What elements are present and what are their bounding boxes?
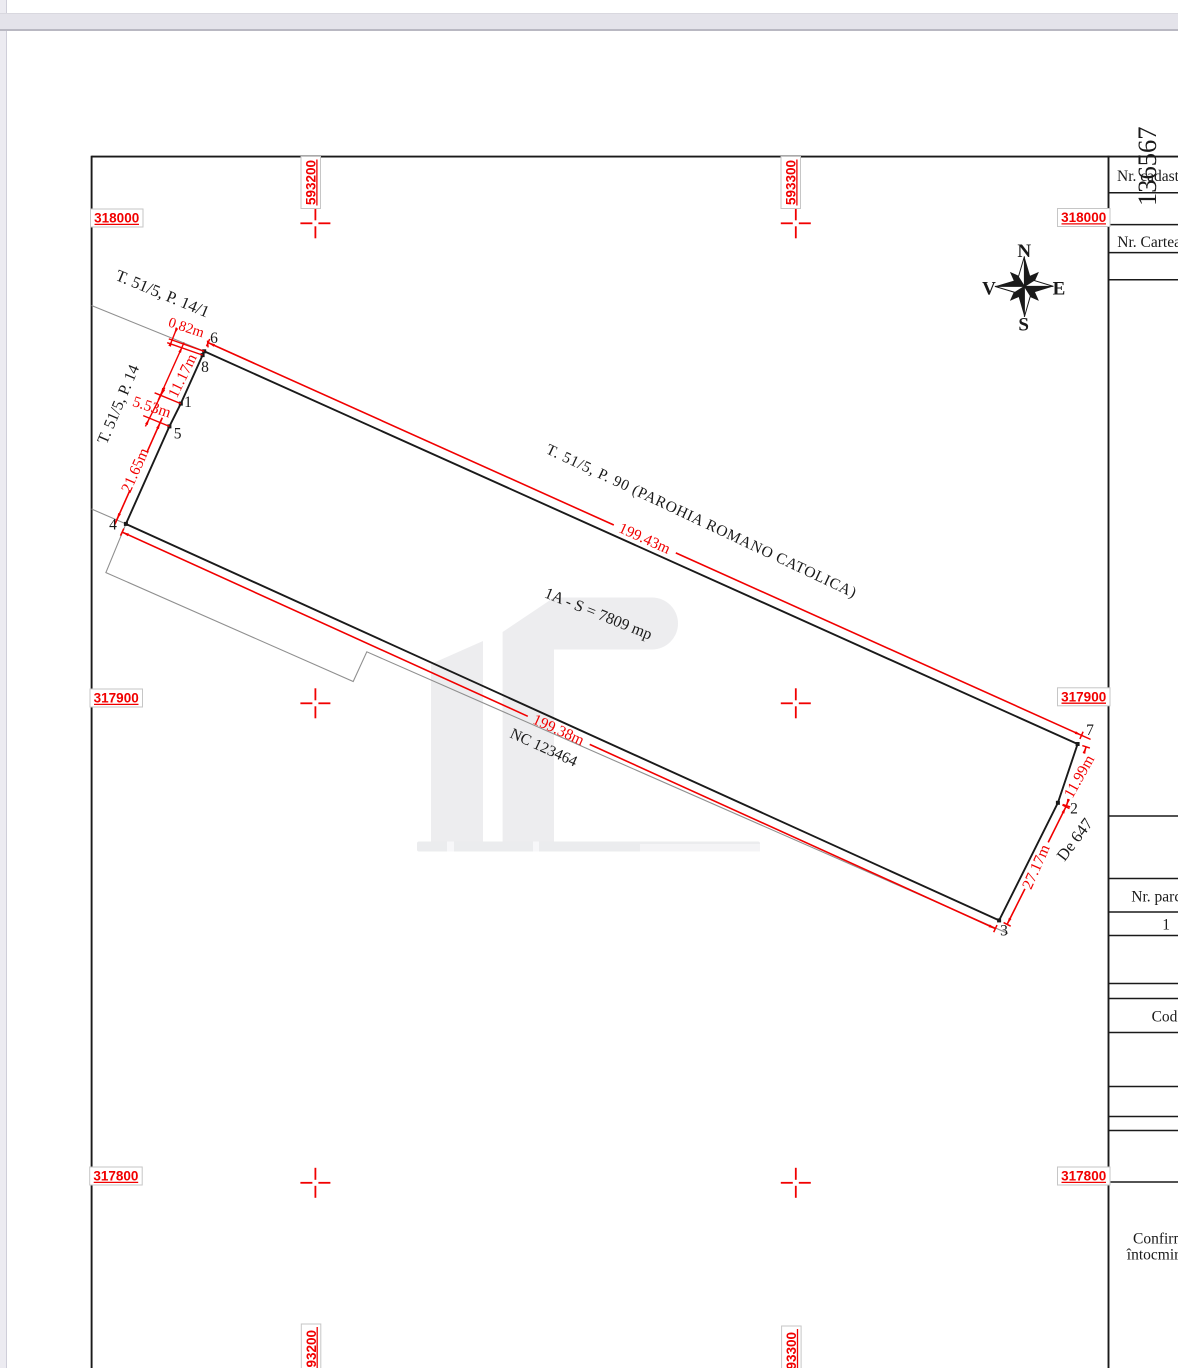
svg-text:T. 51/5, P. 14/1: T. 51/5, P. 14/1: [113, 266, 212, 322]
svg-text:2: 2: [1070, 801, 1078, 818]
svg-text:317900: 317900: [94, 691, 139, 706]
svg-text:6: 6: [210, 330, 218, 347]
svg-text:S: S: [1018, 315, 1029, 336]
svg-text:317800: 317800: [1061, 1169, 1106, 1184]
svg-text:V: V: [982, 279, 996, 300]
svg-text:5: 5: [174, 426, 182, 443]
svg-text:1: 1: [184, 394, 192, 411]
svg-text:8: 8: [201, 359, 209, 376]
svg-text:3: 3: [1000, 923, 1008, 940]
svg-text:317800: 317800: [93, 1169, 138, 1184]
svg-text:27.17m: 27.17m: [1019, 842, 1054, 892]
svg-text:136567: 136567: [1132, 126, 1162, 206]
svg-text:7: 7: [1086, 722, 1094, 739]
svg-text:11.17m: 11.17m: [165, 351, 201, 400]
svg-text:T. 51/5, P. 90 (PAROHIA ROMANO: T. 51/5, P. 90 (PAROHIA ROMANO CATOLICA): [543, 441, 859, 602]
svg-text:21.65m: 21.65m: [118, 446, 153, 496]
svg-text:Nr. parcelă: Nr. parcelă: [1131, 889, 1178, 906]
svg-text:1: 1: [1162, 917, 1170, 934]
svg-text:199.43m: 199.43m: [616, 520, 673, 558]
svg-text:318000: 318000: [94, 211, 139, 226]
svg-text:Cod constr: Cod constr: [1152, 1009, 1178, 1026]
svg-text:318000: 318000: [1061, 210, 1106, 225]
svg-text:întocmirii do: întocmirii do: [1126, 1247, 1178, 1264]
svg-text:4: 4: [109, 517, 117, 534]
svg-text:N: N: [1017, 241, 1031, 262]
svg-text:E: E: [1053, 279, 1066, 300]
svg-text:Nr. Cartea Funciară: Nr. Cartea Funciară: [1117, 234, 1178, 251]
svg-text:Confirm exec: Confirm exec: [1133, 1231, 1178, 1248]
svg-text:317900: 317900: [1061, 689, 1106, 704]
